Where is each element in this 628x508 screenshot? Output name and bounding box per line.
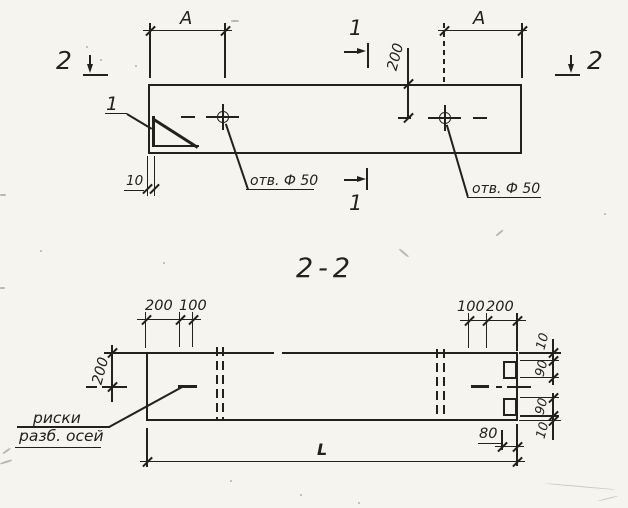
axis-centerline-dash [102,386,127,387]
axis-centerline-dash [507,386,531,387]
section2-left-label: 2 [56,48,72,73]
section1-bottom-arrowhead [357,176,366,182]
hole-right-label: отв. Ф 50 [472,182,540,196]
section2-right-cut-bar [555,74,580,76]
dims-topleft-200: 200 [145,299,173,314]
dimA-right-line [438,30,527,31]
axis-note-underline2 [15,447,101,449]
dimL-line [140,461,525,462]
axis-note-line2: разб. осей [19,429,104,445]
dimL-label: L [317,442,327,458]
scan-speck [163,262,165,264]
scan-speck [604,213,606,215]
section2-right-arrowhead [568,64,574,73]
section-beam-top-edge [146,352,274,354]
scan-speck [40,250,42,252]
dim10-label: 10 [126,175,143,189]
dims-topright-200: 200 [486,300,514,315]
section-view-title: 2-2 [296,255,355,282]
scan-speck [135,65,137,67]
section2-left-arrowhead [87,64,93,73]
detail-ref-underline [105,113,127,115]
hole-left-label: отв. Ф 50 [250,174,318,188]
scan-speck [300,494,302,496]
section2-right-label: 2 [587,48,603,73]
hole-right-centerline-dash [398,117,411,118]
break-line [222,347,224,420]
section1-top-arrowhead [357,48,366,54]
scan-speck [86,46,88,48]
scan-speck [545,483,615,490]
section1-top-label: 1 [349,18,362,39]
end-notch-bottom [503,398,518,416]
plan-beam-outline [148,84,522,154]
dims-topleft-100: 100 [179,299,207,314]
hole-left-centerline-dash [181,116,195,117]
section1-bottom-label: 1 [349,193,362,214]
dim80-label-underline [478,443,501,444]
end-notch-top [503,361,518,379]
dim80-label: 80 [479,427,497,442]
drawing-sheet: 1 10 A A 1 1 200 отв. Ф 50 [0,0,628,508]
dimA-left-label: A [180,10,192,28]
scan-speck [598,496,618,502]
scan-speck [496,229,504,236]
dims-topright-100: 100 [457,300,485,315]
dim10-label-underline [124,190,144,191]
dimA-left-line [143,30,232,31]
scan-speck [2,448,10,454]
scan-speck [100,59,102,61]
chain-label-90-bottom: 90 [533,398,551,415]
dim200-plan-label: 200 [385,41,408,72]
break-line [216,347,218,420]
scan-speck [230,480,232,482]
section1-bottom-cut-bar [366,168,368,190]
hole-right-centerline-h [428,117,461,118]
chain-label-10-top: 10 [534,333,552,350]
dimA-right-label: A [473,10,485,28]
axis-centerline-dash [496,386,502,387]
section-beam-top-edge [282,352,518,354]
section1-top-cut-bar [367,43,369,68]
section-beam-bottom-edge [146,419,518,421]
section2-left-cut-bar [83,74,108,76]
scan-speck [358,502,360,504]
scan-speck [0,287,5,289]
detail-ref-label: 1 [106,95,118,114]
section-beam-left-edge [146,352,148,422]
scan-speck [0,194,6,196]
break-line [443,349,445,420]
scan-speck [231,20,239,22]
chain-label-90-top: 90 [533,360,551,377]
scan-speck [0,459,12,464]
axis-riska-mark-right [471,385,489,388]
scan-speck [399,248,409,257]
break-line [436,349,438,420]
hole-right-centerline-dash [473,117,487,118]
axis-note-line1: риски [33,411,81,427]
axis-centerline-dash [86,386,97,387]
chain-label-10-bottom: 10 [534,422,552,439]
dim200-section-label: 200 [90,355,113,386]
hole-left-centerline-h [206,116,239,117]
